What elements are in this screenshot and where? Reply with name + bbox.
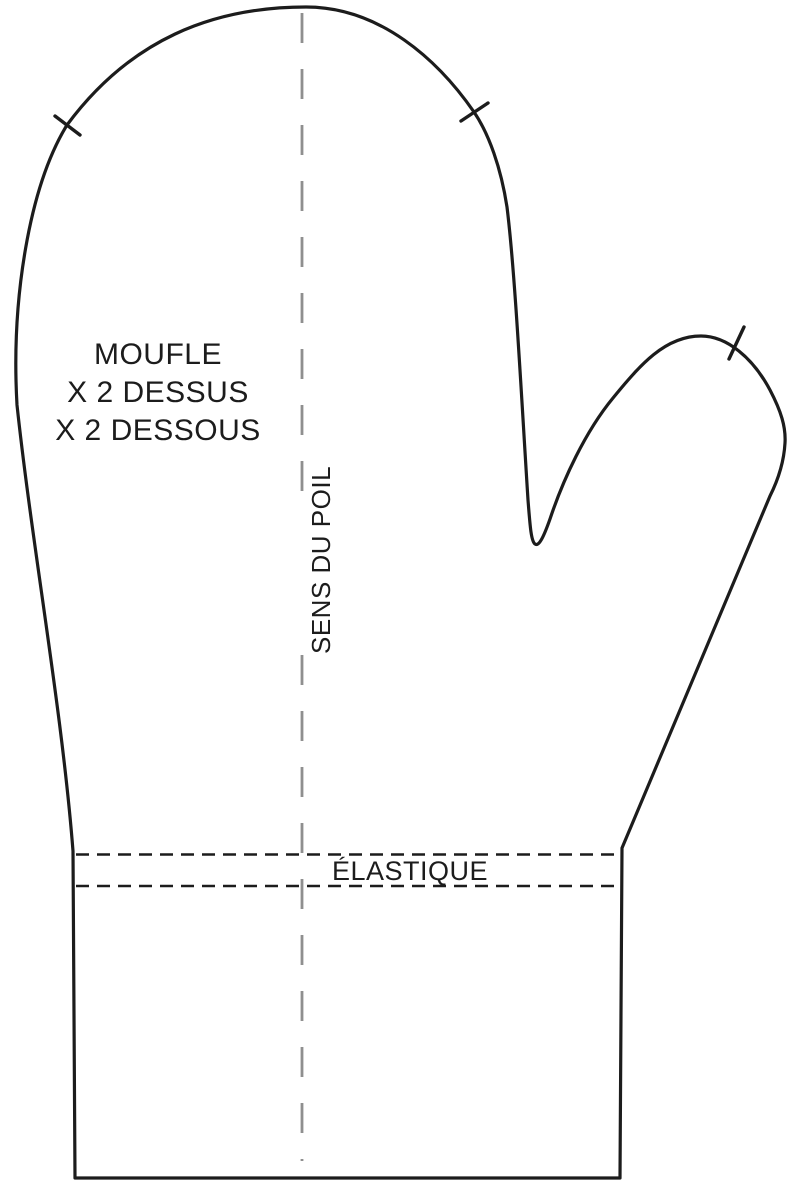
notch-right-icon	[461, 103, 488, 121]
elastic-label: ÉLASTIQUE	[332, 856, 470, 887]
cut-instruction-top: X 2 DESSUS	[28, 374, 288, 412]
mitten-outline	[16, 7, 785, 1178]
piece-label-block: MOUFLE X 2 DESSUS X 2 DESSOUS	[28, 336, 288, 450]
mitten-pattern-drawing	[0, 0, 810, 1187]
sewing-pattern-canvas: MOUFLE X 2 DESSUS X 2 DESSOUS SENS DU PO…	[0, 0, 810, 1187]
cut-instruction-bottom: X 2 DESSOUS	[28, 412, 288, 450]
piece-name-label: MOUFLE	[28, 336, 288, 374]
notch-left-icon	[55, 116, 80, 135]
grainline-label: SENS DU POIL	[306, 504, 337, 654]
